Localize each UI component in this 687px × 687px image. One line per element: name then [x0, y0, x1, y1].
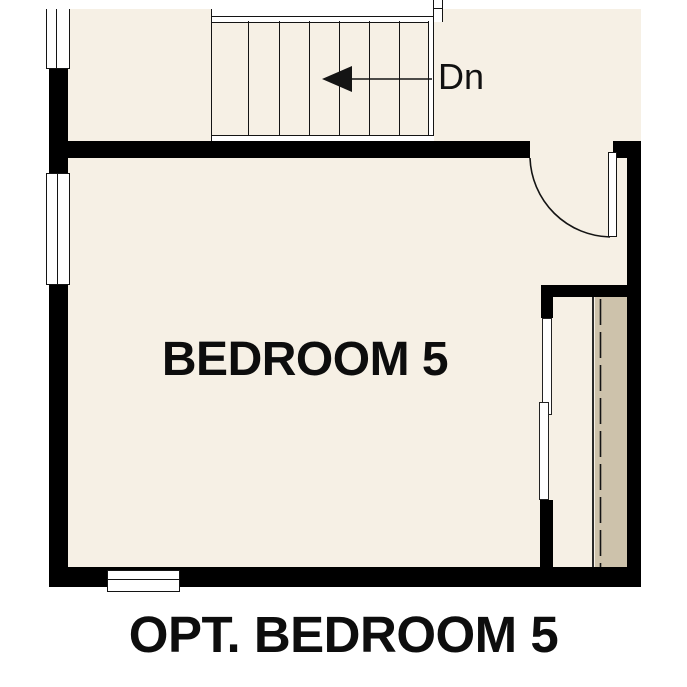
window-left-middle — [46, 173, 70, 285]
stair-tread-line — [279, 21, 280, 135]
floor-upper-hall — [68, 9, 641, 142]
stair-tread-line — [399, 21, 400, 135]
window-left-top — [46, 9, 70, 69]
closet-sliding-door-upper — [542, 318, 552, 415]
stairs-rail-tab-line — [434, 8, 442, 9]
stair-tread-line — [309, 21, 310, 135]
closet-shelf — [595, 297, 627, 567]
wall-closet-stub-lower — [540, 500, 553, 567]
stairs-left-stringer — [211, 9, 212, 142]
floor-plan: BEDROOM 5 Dn OPT. BEDROOM 5 — [0, 0, 687, 687]
stair-tread-line — [339, 21, 340, 135]
window-mullion — [57, 174, 58, 284]
wall-closet-top — [542, 285, 641, 297]
stairs-right-stringer — [428, 21, 434, 141]
wall-right — [627, 141, 641, 587]
stair-direction-label: Dn — [438, 58, 484, 96]
door-leaf — [608, 152, 617, 237]
stairs-rail-tab — [433, 0, 443, 22]
stairs-crop-gap — [212, 0, 433, 16]
closet-sliding-door-lower — [539, 402, 549, 500]
stair-tread-line — [248, 21, 249, 135]
wall-left-lower — [49, 285, 68, 587]
window-bottom — [107, 570, 180, 592]
window-mullion — [56, 9, 57, 68]
room-label: BEDROOM 5 — [68, 332, 542, 388]
closet-shelf-edge-line — [592, 297, 594, 567]
plan-caption: OPT. BEDROOM 5 — [0, 606, 687, 664]
wall-closet-stub-upper — [541, 285, 553, 318]
stair-tread-line — [369, 21, 370, 135]
wall-top — [49, 141, 530, 158]
window-mullion — [108, 579, 179, 580]
